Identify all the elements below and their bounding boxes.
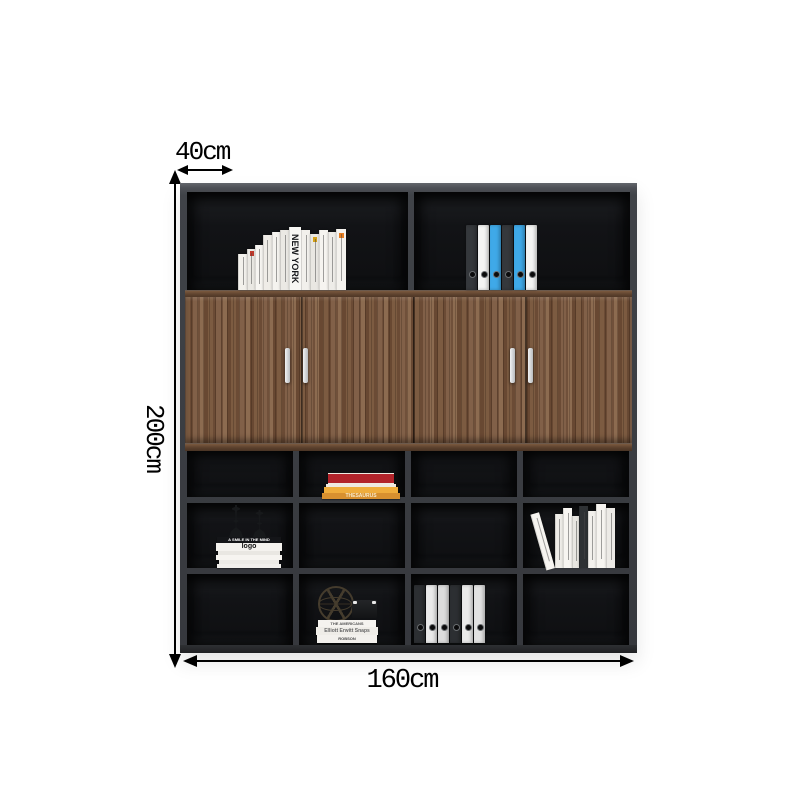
file-binder xyxy=(514,225,525,290)
book-spine xyxy=(336,229,346,290)
book-spine xyxy=(310,234,318,290)
stacked-book xyxy=(217,564,281,568)
binder-grommet-icon xyxy=(529,271,536,278)
file-binder xyxy=(502,225,513,290)
width-dimension-label: 160cm xyxy=(330,666,474,696)
binder-grommet-icon xyxy=(517,271,524,278)
book-spine xyxy=(579,506,588,568)
depth-dimension-label: 40cm xyxy=(175,137,229,167)
door-gap xyxy=(525,297,527,443)
book-spine-title: NEW YORK xyxy=(290,227,301,290)
binder-grommet-icon xyxy=(465,624,472,631)
book-spine xyxy=(555,514,563,568)
book-spine xyxy=(606,508,615,568)
cabinet: NEW YORK THESAURUS A SMILE IN THE MINDlo… xyxy=(180,183,637,653)
binder-grommet-icon xyxy=(493,271,500,278)
book-spine-featured: NEW YORK xyxy=(289,227,301,290)
file-binder xyxy=(466,225,477,290)
shelf-cubby xyxy=(523,574,629,645)
stacked-book: THESAURUS xyxy=(322,493,400,499)
file-binder xyxy=(462,585,473,643)
binder-grommet-icon xyxy=(441,624,448,631)
white-book-stack: A SMILE IN THE MINDlogo xyxy=(215,537,283,568)
book-spine xyxy=(280,230,289,290)
book-spine xyxy=(301,230,310,290)
black-box-decor xyxy=(352,600,377,618)
file-binder xyxy=(490,225,501,290)
shelf-cubby xyxy=(411,450,517,497)
spine-color-mark xyxy=(313,237,317,242)
shelf-cubby xyxy=(299,503,405,568)
stacked-book xyxy=(328,473,394,484)
orange-red-book-stack: THESAURUS xyxy=(322,473,400,499)
door-handle xyxy=(303,348,308,383)
width-dimension-line xyxy=(195,660,622,662)
file-binder xyxy=(450,585,461,643)
depth-dimension-line xyxy=(186,169,224,171)
binder-grommet-icon xyxy=(417,624,424,631)
file-binder xyxy=(426,585,437,643)
cabinet-doors xyxy=(185,297,632,443)
book-spine xyxy=(263,235,272,290)
top-shelf-binders xyxy=(466,225,537,290)
leaning-books xyxy=(546,504,618,568)
binder-grommet-icon xyxy=(477,624,484,631)
binder-grommet-icon xyxy=(429,624,436,631)
shelf-cubby xyxy=(523,450,629,497)
height-arrow-down-icon xyxy=(169,654,181,668)
bottom-shelf-binders xyxy=(414,585,485,643)
stacked-book: THE AMERICANS xyxy=(318,620,376,627)
door-handle xyxy=(510,348,515,383)
top-shelf-books: NEW YORK xyxy=(238,227,346,290)
stacked-book: logo xyxy=(216,543,282,551)
width-arrow-right-icon xyxy=(620,655,634,667)
binder-grommet-icon xyxy=(453,624,460,631)
stacked-book: ROBSON xyxy=(317,635,377,643)
cabinet-base xyxy=(180,645,637,653)
door-handle xyxy=(285,348,290,383)
file-binder xyxy=(438,585,449,643)
file-binder xyxy=(478,225,489,290)
wire-sphere-decor xyxy=(318,586,354,622)
book-spine xyxy=(247,249,255,290)
book-spine xyxy=(563,508,572,568)
photo-book-stack: THE AMERICANSElliott Erwitt SnapsROBSON xyxy=(314,620,380,643)
spine-color-mark xyxy=(250,251,254,256)
book-spine xyxy=(572,516,579,568)
height-dimension-line xyxy=(174,182,176,656)
shelf-cubby xyxy=(187,450,293,497)
stacked-book: Elliott Erwitt Snaps xyxy=(316,627,378,635)
file-binder xyxy=(414,585,425,643)
door-gap xyxy=(413,297,415,443)
binder-grommet-icon xyxy=(469,271,476,278)
spine-color-mark xyxy=(339,233,344,238)
binder-grommet-icon xyxy=(481,271,488,278)
book-spine xyxy=(328,232,336,290)
book-spine xyxy=(238,254,247,290)
book-spine xyxy=(588,511,596,568)
depth-arrow-right-icon xyxy=(222,165,233,175)
book-spine xyxy=(272,232,280,290)
file-binder xyxy=(474,585,485,643)
book-spine xyxy=(255,245,262,290)
height-dimension-label: 200cm xyxy=(139,384,169,492)
door-handle xyxy=(528,348,533,383)
binder-grommet-icon xyxy=(505,271,512,278)
shelf-cubby xyxy=(411,503,517,568)
product-dimension-image: 40cm 200cm 160cm NEW YORK THESAURUS A S xyxy=(0,0,800,800)
shelf-wood-trim-bottom xyxy=(185,443,632,451)
shelf-cubby xyxy=(187,574,293,645)
file-binder xyxy=(526,225,537,290)
book-spine xyxy=(319,230,328,290)
book-spine xyxy=(596,504,606,568)
